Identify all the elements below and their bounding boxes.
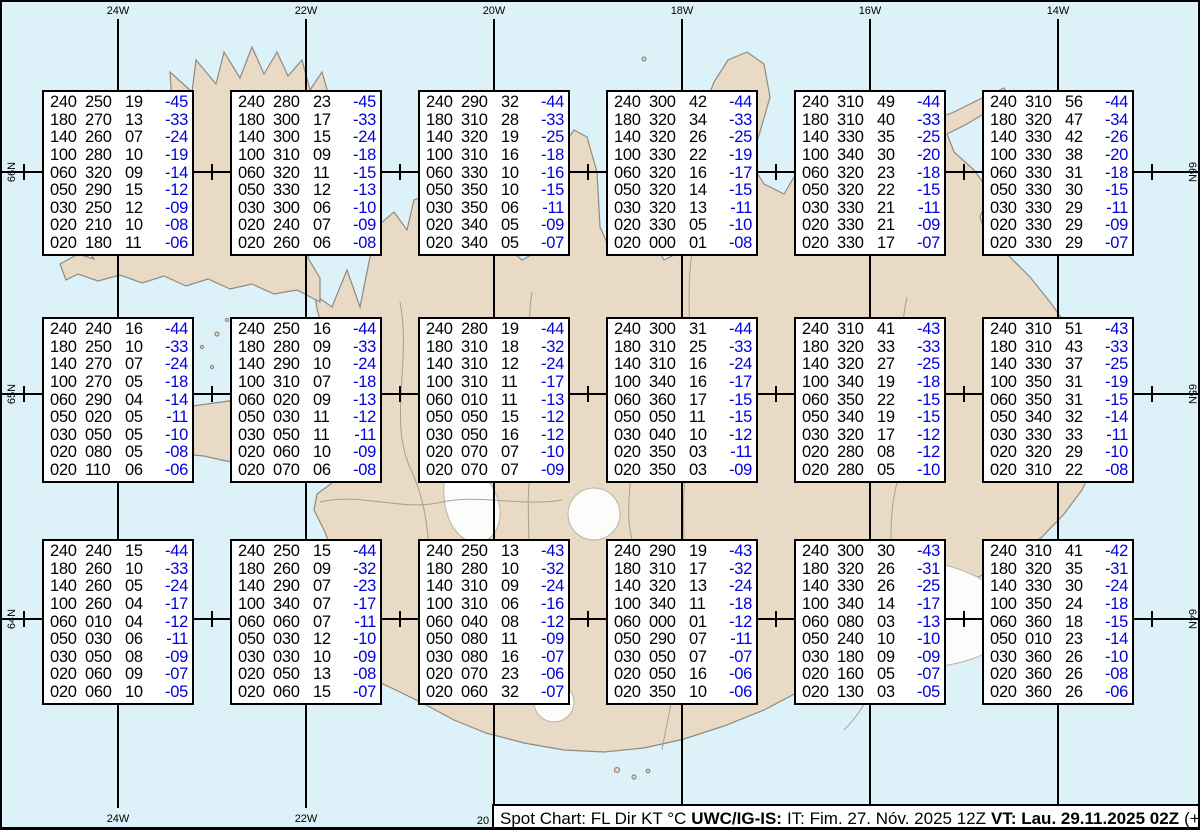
spot-box-66n-22w: 24028023-4518030017-3314030015-241003100… [230,90,382,256]
kt-value: 33 [1065,427,1095,444]
dir-value: 180 [837,649,877,666]
fl-value: 050 [50,182,85,199]
spot-row: 14026007-24 [50,129,188,146]
dir-value: 350 [837,392,877,409]
dir-value: 290 [461,94,501,111]
spot-row: 03003010-09 [238,649,376,666]
lon-label-top: 24W [107,5,130,17]
fl-value: 180 [238,339,273,356]
fl-value: 020 [50,444,85,461]
spot-row: 02033021-09 [802,217,940,234]
kt-value: 10 [125,147,155,164]
temp-value: -18 [531,147,564,164]
kt-value: 06 [125,631,155,648]
spot-row: 06004008-12 [426,614,564,631]
temp-value: -11 [907,200,940,217]
dir-value: 310 [1025,543,1065,560]
kt-value: 07 [125,129,155,146]
fl-value: 140 [238,356,273,373]
fl-value: 100 [50,374,85,391]
kt-value: 16 [689,165,719,182]
spot-row: 03005005-10 [50,427,188,444]
fl-value: 050 [238,182,273,199]
dir-value: 240 [273,217,313,234]
dir-value: 260 [85,561,125,578]
dir-value: 310 [649,356,689,373]
kt-value: 06 [501,200,531,217]
dir-value: 070 [461,444,501,461]
spot-row: 24030042-44 [614,94,752,111]
fl-value: 030 [802,200,837,217]
temp-value: -25 [1095,356,1128,373]
spot-row: 02007006-08 [238,462,376,479]
temp-value: -18 [1095,596,1128,613]
kt-value: 35 [877,129,907,146]
kt-value: 13 [313,666,343,683]
temp-value: -24 [719,578,752,595]
dir-value: 330 [837,129,877,146]
fl-value: 060 [802,392,837,409]
fl-value: 140 [990,129,1025,146]
kt-value: 05 [501,235,531,252]
kt-value: 31 [1065,392,1095,409]
fl-value: 240 [426,321,461,338]
fl-value: 020 [614,235,649,252]
spot-row: 24030030-43 [802,543,940,560]
spot-box-64n-14w: 24031041-4218032035-3114033030-241003502… [982,539,1134,705]
kt-value: 19 [689,543,719,560]
fl-value: 240 [802,543,837,560]
dir-value: 010 [461,392,501,409]
kt-value: 13 [689,578,719,595]
fl-value: 030 [426,649,461,666]
temp-value: -33 [343,339,376,356]
dir-value: 310 [1025,462,1065,479]
grid-tick-cross [963,611,965,627]
temp-value: -06 [155,235,188,252]
fl-value: 060 [614,614,649,631]
fl-value: 020 [50,462,85,479]
fl-value: 020 [238,444,273,461]
fl-value: 020 [614,462,649,479]
kt-value: 06 [501,596,531,613]
dir-value: 050 [273,666,313,683]
dir-value: 330 [1025,578,1065,595]
temp-value: -18 [907,165,940,182]
issue-time: IT: Fim. 27. Nóv. 2025 12Z [787,809,986,829]
dir-value: 320 [85,165,125,182]
spot-row: 02006009-07 [50,666,188,683]
kt-value: 09 [501,578,531,595]
kt-value: 17 [689,392,719,409]
dir-value: 330 [461,165,501,182]
spot-row: 14033042-26 [990,129,1128,146]
fl-value: 050 [802,409,837,426]
kt-value: 07 [313,374,343,391]
kt-value: 06 [125,462,155,479]
fl-value: 140 [238,578,273,595]
fl-value: 240 [614,94,649,111]
fl-value: 020 [238,462,273,479]
dir-value: 330 [1025,165,1065,182]
temp-value: -33 [1095,339,1128,356]
kt-value: 31 [1065,374,1095,391]
kt-value: 11 [501,374,531,391]
temp-value: -19 [1095,374,1128,391]
spot-box-65n-24w: 24024016-4418025010-3314027007-241002700… [42,317,194,483]
dir-value: 310 [837,321,877,338]
spot-row: 03032017-12 [802,427,940,444]
fl-value: 060 [50,165,85,182]
dir-value: 080 [461,649,501,666]
temp-value: -24 [1095,578,1128,595]
fl-value: 020 [426,462,461,479]
dir-value: 010 [1025,631,1065,648]
temp-value: -25 [907,578,940,595]
spot-row: 10034011-18 [614,596,752,613]
fl-value: 050 [802,182,837,199]
dir-value: 050 [273,427,313,444]
temp-value: -13 [343,182,376,199]
kt-value: 16 [501,427,531,444]
dir-value: 310 [837,112,877,129]
fl-value: 060 [238,614,273,631]
spot-row: 02035010-06 [614,684,752,701]
temp-value: -15 [1095,182,1128,199]
kt-value: 23 [501,666,531,683]
lon-label-top: 22W [295,5,318,17]
temp-value: -25 [531,129,564,146]
dir-value: 050 [649,666,689,683]
dir-value: 260 [85,596,125,613]
dir-value: 240 [837,631,877,648]
kt-value: 04 [125,614,155,631]
dir-value: 330 [1025,182,1065,199]
temp-value: -08 [155,444,188,461]
temp-value: -43 [719,543,752,560]
temp-value: -15 [1095,614,1128,631]
temp-value: -14 [1095,631,1128,648]
fl-value: 240 [802,94,837,111]
fl-value: 140 [990,578,1025,595]
spot-row: 18027013-33 [50,112,188,129]
kt-value: 10 [689,427,719,444]
kt-value: 09 [313,561,343,578]
dir-value: 330 [837,217,877,234]
temp-value: -18 [719,596,752,613]
temp-value: -17 [155,596,188,613]
temp-value: -15 [719,409,752,426]
kt-value: 22 [1065,462,1095,479]
temp-value: -33 [343,112,376,129]
fl-value: 180 [802,339,837,356]
spot-row: 05001023-14 [990,631,1128,648]
dir-value: 280 [273,339,313,356]
spot-row: 10034019-18 [802,374,940,391]
dir-value: 330 [1025,129,1065,146]
temp-value: -23 [343,578,376,595]
spot-row: 24024015-44 [50,543,188,560]
dir-value: 350 [1025,374,1065,391]
spot-row: 06000001-12 [614,614,752,631]
temp-value: -07 [531,235,564,252]
spot-row: 10031009-18 [238,147,376,164]
spot-row: 18028010-32 [426,561,564,578]
spot-box-65n-14w: 24031051-4318031043-3314033037-251003503… [982,317,1134,483]
kt-value: 07 [689,649,719,666]
dir-value: 320 [837,165,877,182]
kt-value: 10 [125,561,155,578]
spot-row: 18031018-32 [426,339,564,356]
spot-row: 02006032-07 [426,684,564,701]
spot-row: 14032026-25 [614,129,752,146]
temp-value: -43 [531,543,564,560]
dir-value: 300 [273,112,313,129]
spot-row: 10031007-18 [238,374,376,391]
kt-value: 07 [313,217,343,234]
spot-row: 02008005-08 [50,444,188,461]
dir-value: 340 [649,374,689,391]
temp-value: -11 [155,409,188,426]
dir-value: 320 [837,339,877,356]
kt-value: 27 [877,356,907,373]
kt-value: 08 [501,614,531,631]
kt-value: 19 [877,374,907,391]
temp-value: -10 [907,631,940,648]
fl-value: 020 [990,684,1025,701]
kt-value: 42 [1065,129,1095,146]
dir-value: 060 [85,684,125,701]
temp-value: -24 [343,356,376,373]
fl-value: 140 [50,129,85,146]
dir-value: 320 [1025,561,1065,578]
fl-value: 180 [50,112,85,129]
fl-value: 100 [802,147,837,164]
grid-tick-cross [1151,611,1153,627]
fl-value: 020 [50,217,85,234]
temp-value: -43 [1095,321,1128,338]
dir-value: 360 [1025,666,1065,683]
kt-value: 26 [1065,666,1095,683]
spot-row: 02028005-10 [802,462,940,479]
fl-value: 180 [50,561,85,578]
temp-value: -09 [343,217,376,234]
valid-time: VT: Lau. 29.11.2025 02Z [991,809,1179,829]
grid-tick-cross [211,386,213,402]
fl-value: 030 [50,200,85,217]
spot-row: 03036026-10 [990,649,1128,666]
temp-value: -06 [1095,684,1128,701]
dir-value: 340 [273,596,313,613]
fl-value: 020 [50,666,85,683]
dir-value: 050 [649,649,689,666]
temp-value: -07 [531,684,564,701]
fl-value: 060 [802,614,837,631]
temp-value: -18 [343,374,376,391]
temp-value: -34 [1095,112,1128,129]
fl-value: 030 [614,200,649,217]
spot-row: 10026004-17 [50,596,188,613]
kt-value: 08 [877,444,907,461]
kt-value: 15 [313,129,343,146]
spot-row: 14032019-25 [426,129,564,146]
dir-value: 260 [273,561,313,578]
temp-value: -44 [531,321,564,338]
spot-row: 10031011-17 [426,374,564,391]
fl-value: 060 [990,614,1025,631]
fl-value: 180 [238,112,273,129]
temp-value: -13 [343,392,376,409]
kt-value: 03 [877,684,907,701]
spot-row: 24029032-44 [426,94,564,111]
spot-row: 06032009-14 [50,165,188,182]
spot-box-65n-16w: 24031041-4318032033-3314032027-251003401… [794,317,946,483]
dir-value: 040 [461,614,501,631]
dir-value: 340 [837,147,877,164]
fl-value: 020 [802,444,837,461]
dir-value: 330 [1025,356,1065,373]
fl-value: 050 [990,182,1025,199]
dir-value: 070 [273,462,313,479]
temp-value: -12 [531,427,564,444]
spot-row: 10034016-17 [614,374,752,391]
fl-value: 030 [50,427,85,444]
fl-value: 240 [238,543,273,560]
spot-box-65n-20w: 24028019-4418031018-3214031012-241003101… [418,317,570,483]
dir-value: 250 [273,543,313,560]
dir-value: 280 [461,561,501,578]
spot-row: 02007007-10 [426,444,564,461]
kt-value: 16 [501,147,531,164]
fl-value: 100 [990,374,1025,391]
kt-value: 56 [1065,94,1095,111]
temp-value: -11 [1095,200,1128,217]
spot-row: 18031028-33 [426,112,564,129]
fl-value: 180 [614,339,649,356]
temp-value: -25 [719,129,752,146]
dir-value: 060 [273,444,313,461]
dir-value: 030 [273,409,313,426]
grid-tick-cross [775,386,777,402]
spot-row: 02032029-10 [990,444,1128,461]
spot-row: 02033029-09 [990,217,1128,234]
spot-row: 18026009-32 [238,561,376,578]
spot-row: 02007007-09 [426,462,564,479]
dir-value: 130 [837,684,877,701]
fl-value: 060 [426,614,461,631]
kt-value: 37 [1065,356,1095,373]
kt-value: 21 [877,217,907,234]
dir-value: 310 [461,112,501,129]
fl-value: 020 [426,666,461,683]
spot-box-64n-20w: 24025013-4318028010-3214031009-241003100… [418,539,570,705]
lon-label-bottom: 24W [107,813,130,825]
fl-value: 100 [614,147,649,164]
fl-value: 060 [426,165,461,182]
fl-value: 020 [238,217,273,234]
temp-value: -08 [343,666,376,683]
dir-value: 280 [837,462,877,479]
temp-value: -11 [531,200,564,217]
dir-value: 310 [1025,94,1065,111]
dir-value: 290 [85,182,125,199]
fl-value: 030 [238,649,273,666]
fl-value: 030 [50,649,85,666]
temp-value: -44 [343,543,376,560]
spot-row: 10028010-19 [50,147,188,164]
temp-value: -15 [907,392,940,409]
dir-value: 350 [649,462,689,479]
kt-value: 16 [689,374,719,391]
kt-value: 15 [125,543,155,560]
dir-value: 290 [649,631,689,648]
kt-value: 05 [125,427,155,444]
kt-value: 10 [501,561,531,578]
dir-value: 350 [461,182,501,199]
temp-value: -44 [907,94,940,111]
kt-value: 15 [313,684,343,701]
forecast-offset: (+38 h) [1184,809,1200,829]
temp-value: -26 [1095,129,1128,146]
fl-value: 240 [50,543,85,560]
kt-value: 26 [877,578,907,595]
fl-value: 180 [802,112,837,129]
spot-row: 24031056-44 [990,94,1128,111]
spot-row: 05003011-12 [238,409,376,426]
spot-row: 24024016-44 [50,321,188,338]
temp-value: -19 [719,147,752,164]
dir-value: 060 [461,684,501,701]
temp-value: -18 [155,374,188,391]
dir-value: 260 [273,235,313,252]
fl-value: 240 [50,321,85,338]
dir-value: 320 [837,427,877,444]
fl-value: 020 [426,217,461,234]
kt-value: 17 [877,235,907,252]
spot-row: 03005008-09 [50,649,188,666]
grid-tick-cross [775,164,777,180]
fl-value: 030 [802,649,837,666]
temp-value: -10 [531,444,564,461]
kt-value: 51 [1065,321,1095,338]
grid-tick-cross [587,164,589,180]
dir-value: 330 [837,200,877,217]
temp-value: -07 [719,649,752,666]
kt-value: 15 [125,182,155,199]
fl-value: 060 [990,392,1025,409]
kt-value: 11 [501,631,531,648]
spot-row: 02034005-07 [426,235,564,252]
kt-value: 11 [313,427,343,444]
grid-tick-cross [587,386,589,402]
temp-value: -06 [719,666,752,683]
dir-value: 330 [1025,427,1065,444]
spot-row: 06006007-11 [238,614,376,631]
kt-value: 32 [1065,409,1095,426]
spot-row: 05034032-14 [990,409,1128,426]
dir-value: 320 [1025,112,1065,129]
spot-row: 10035031-19 [990,374,1128,391]
kt-value: 24 [1065,596,1095,613]
dir-value: 060 [273,684,313,701]
spot-row: 02034005-09 [426,217,564,234]
kt-value: 05 [125,374,155,391]
kt-value: 16 [125,321,155,338]
fl-value: 180 [426,561,461,578]
fl-value: 100 [238,596,273,613]
temp-value: -45 [155,94,188,111]
kt-value: 05 [501,217,531,234]
